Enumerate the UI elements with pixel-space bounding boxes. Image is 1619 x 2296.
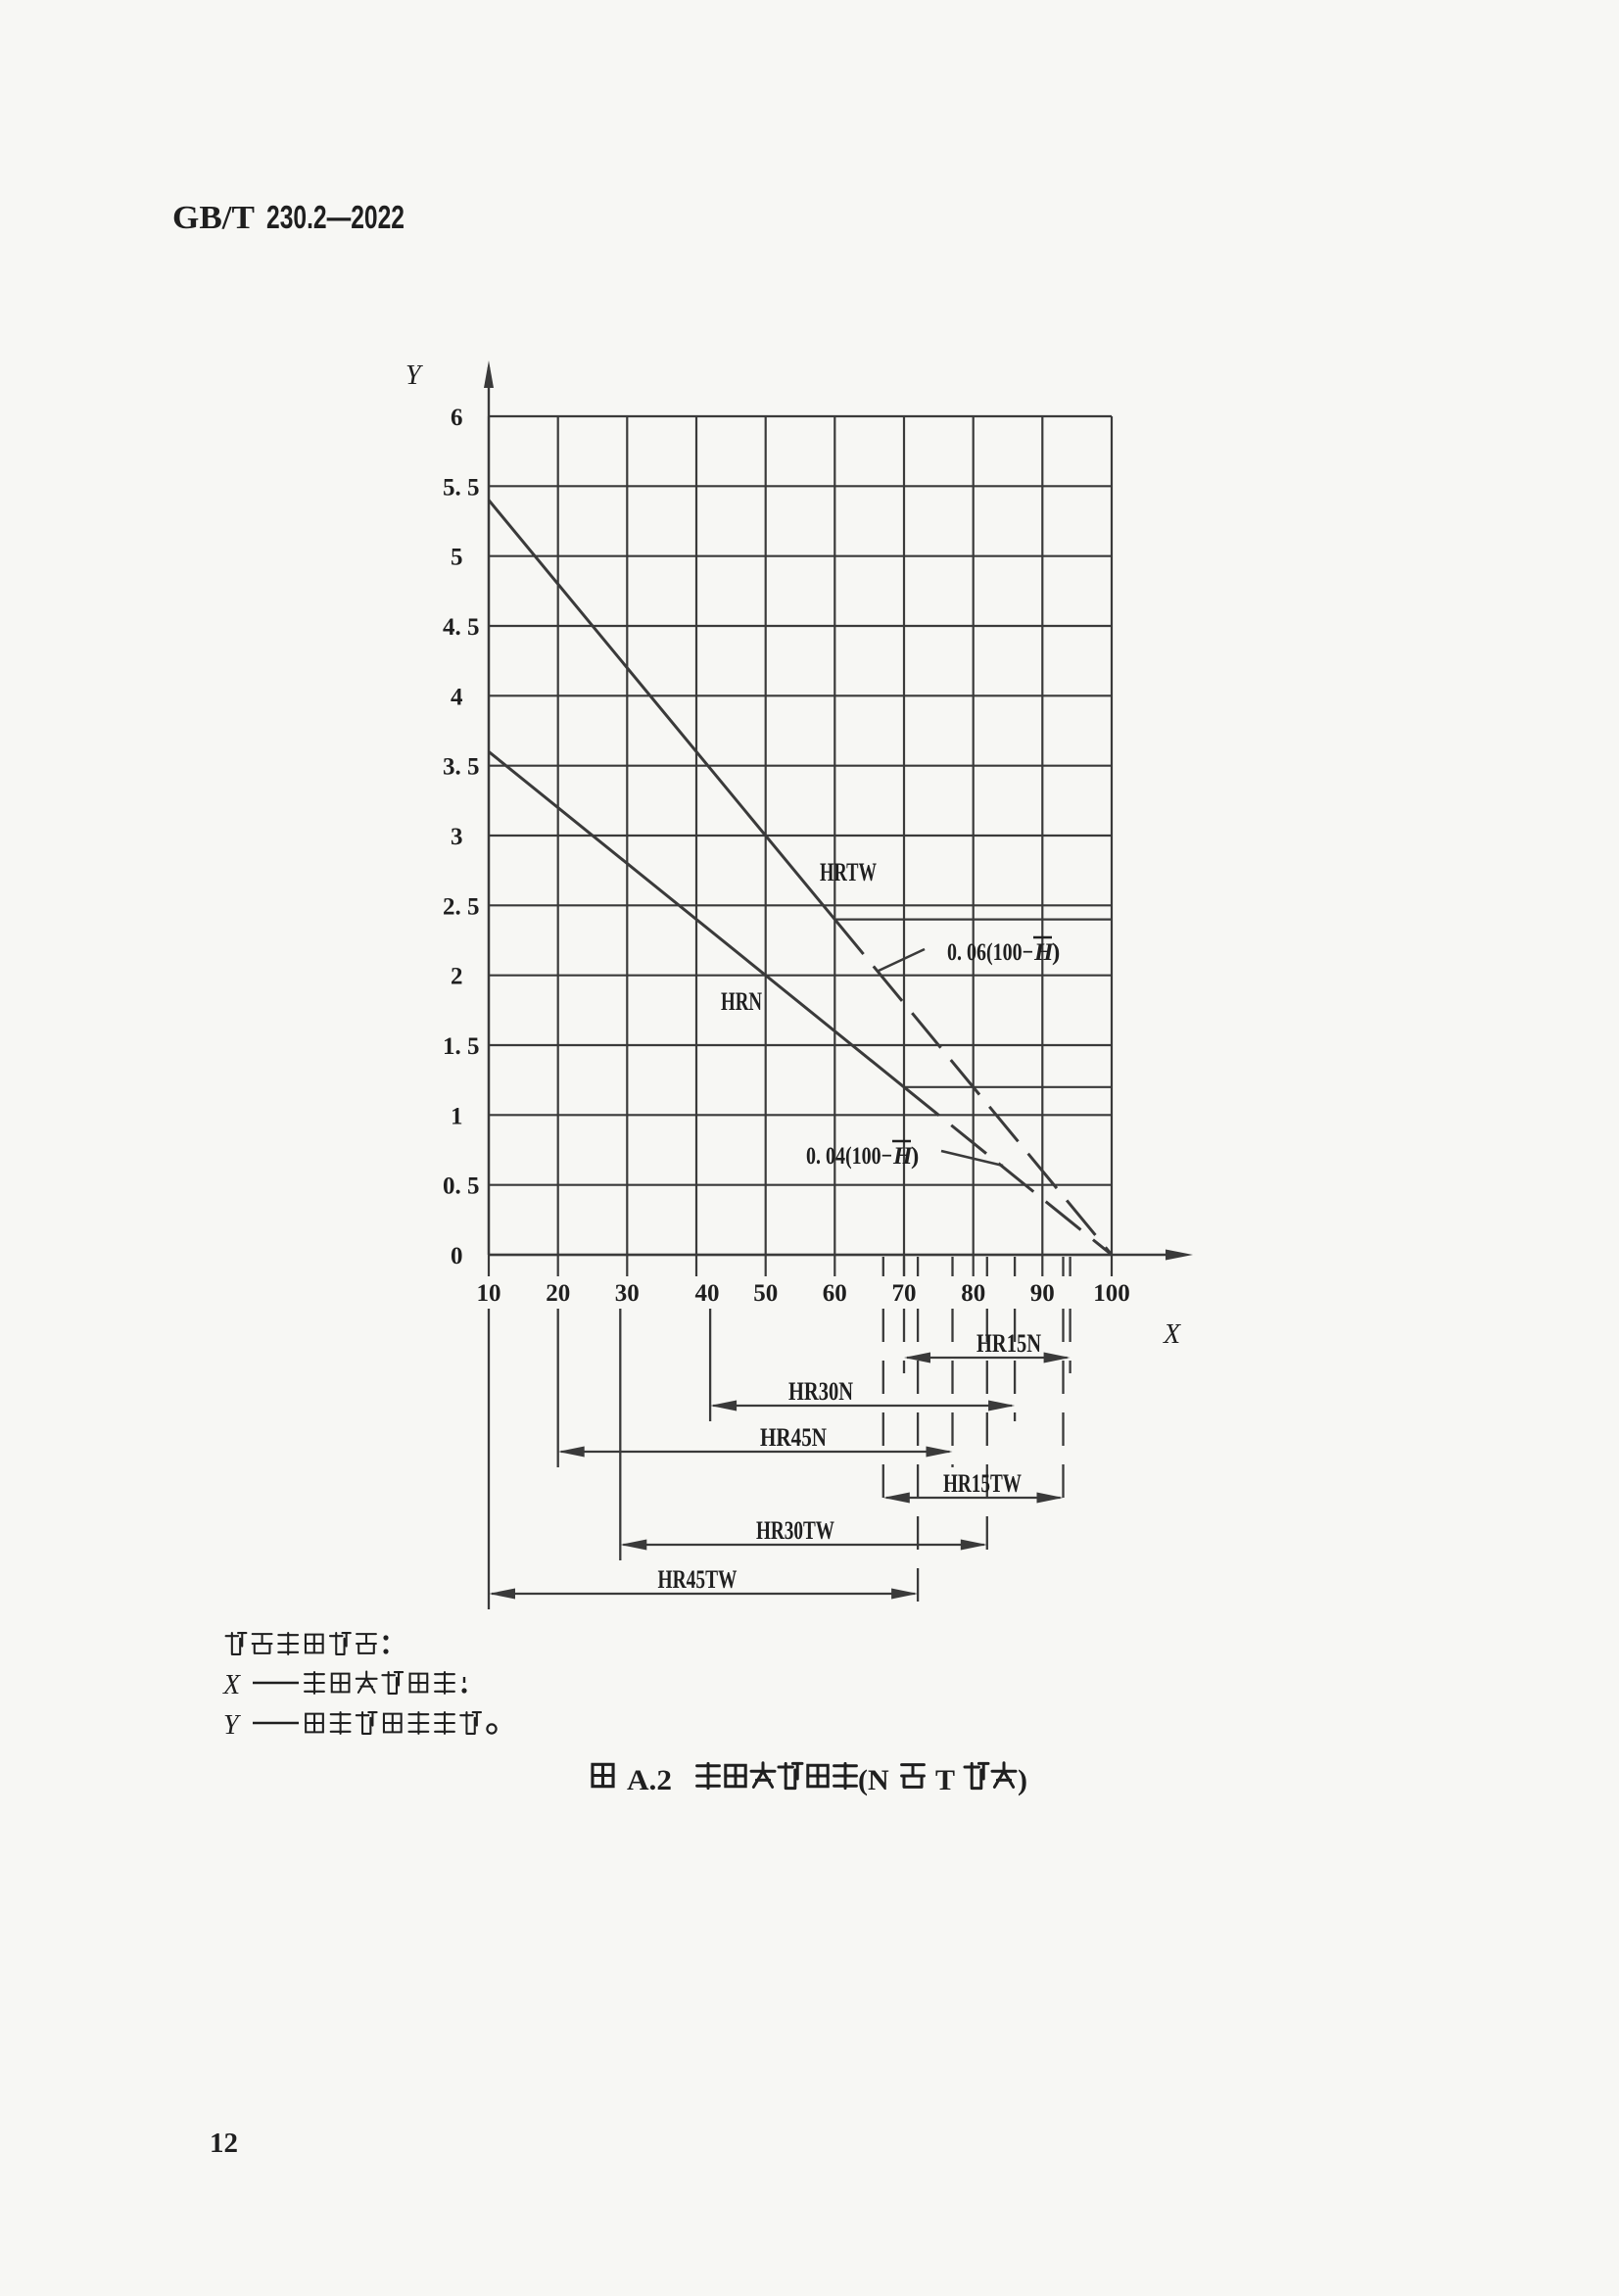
svg-text:2: 2	[451, 964, 463, 990]
svg-text:100: 100	[1093, 1280, 1130, 1307]
svg-text:T: T	[935, 1764, 955, 1796]
svg-text:GB/T: GB/T	[172, 200, 255, 236]
svg-text:40: 40	[695, 1280, 720, 1307]
svg-text:10: 10	[477, 1280, 501, 1307]
svg-text:): )	[1018, 1764, 1027, 1796]
svg-text:HR45N: HR45N	[760, 1423, 827, 1452]
svg-text:60: 60	[823, 1280, 847, 1307]
svg-text:1. 5: 1. 5	[443, 1033, 480, 1060]
svg-text:HR15N: HR15N	[976, 1329, 1041, 1358]
svg-text:4. 5: 4. 5	[443, 614, 480, 641]
svg-text:50: 50	[753, 1280, 778, 1307]
svg-text:3. 5: 3. 5	[443, 754, 480, 781]
svg-text:80: 80	[961, 1280, 985, 1307]
svg-text:70: 70	[892, 1280, 917, 1307]
svg-text:30: 30	[615, 1280, 640, 1307]
svg-text:HR15TW: HR15TW	[943, 1469, 1022, 1498]
svg-text:HR45TW: HR45TW	[658, 1565, 738, 1594]
svg-text:5. 5: 5. 5	[443, 474, 480, 501]
svg-text:A.2: A.2	[627, 1764, 672, 1796]
svg-text:0: 0	[451, 1243, 463, 1269]
svg-text:2. 5: 2. 5	[443, 893, 480, 920]
svg-text:HR30N: HR30N	[788, 1377, 853, 1406]
svg-text:HR30TW: HR30TW	[756, 1516, 834, 1545]
svg-text:): )	[1052, 939, 1060, 966]
svg-text:3: 3	[451, 824, 463, 850]
svg-text:0. 06(100−: 0. 06(100−	[947, 939, 1033, 966]
svg-text:20: 20	[546, 1280, 570, 1307]
svg-text:HRN: HRN	[721, 987, 762, 1016]
svg-text:6: 6	[451, 405, 463, 431]
svg-text:12: 12	[210, 2128, 238, 2159]
svg-text:230.2—2022: 230.2—2022	[266, 199, 405, 235]
svg-text:0. 5: 0. 5	[443, 1173, 480, 1200]
svg-text:90: 90	[1030, 1280, 1055, 1307]
svg-text:(N: (N	[858, 1764, 889, 1796]
svg-text:1: 1	[451, 1103, 463, 1129]
svg-text:4: 4	[451, 684, 463, 710]
svg-text:HRTW: HRTW	[820, 858, 877, 886]
svg-text:5: 5	[451, 545, 463, 571]
svg-text:): )	[911, 1143, 919, 1170]
svg-text:X: X	[1163, 1319, 1181, 1350]
svg-text:0. 04(100−: 0. 04(100−	[806, 1143, 892, 1170]
svg-text:X: X	[222, 1670, 241, 1700]
